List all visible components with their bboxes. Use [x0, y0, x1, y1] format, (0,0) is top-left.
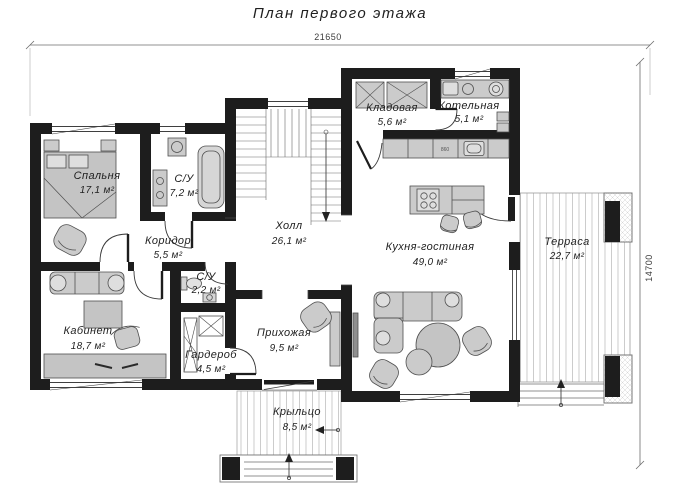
area-kitchen: 49,0 м² [413, 257, 448, 268]
label-porch: Крыльцо [273, 406, 321, 418]
tv [353, 313, 358, 357]
office-sofa [50, 272, 124, 294]
label-kitchen: Кухня-гостиная [386, 241, 475, 253]
pantry-door [357, 141, 382, 169]
office-door [134, 271, 162, 299]
dimension-right [636, 58, 644, 469]
floor-plan-canvas: План первого этажа 21650 14700 [0, 0, 680, 502]
area-wardrobe: 4,5 м² [197, 364, 226, 375]
area-boiler: 5,1 м² [455, 114, 484, 125]
staircase [236, 109, 341, 225]
bath1-window [160, 123, 185, 134]
kitchen-island [410, 186, 484, 214]
label-entry: Прихожая [257, 327, 311, 339]
area-bath1: 7,2 м² [170, 188, 199, 199]
dimension-height-label: 14700 [644, 254, 654, 282]
area-bedroom: 17,1 м² [80, 185, 115, 196]
living-armchair-left [366, 356, 402, 392]
label-bedroom: Спальня [74, 170, 121, 182]
area-terrace: 22,7 м² [549, 251, 585, 262]
plan-title: План первого этажа [253, 5, 427, 22]
office-table [84, 301, 122, 328]
label-bath2: С/У [196, 271, 216, 283]
bedroom-armchair [51, 221, 90, 258]
wardrobe-shaft [184, 318, 197, 372]
area-bath2: 2,2 м² [191, 285, 221, 296]
label-wardrobe: Гардероб [185, 349, 237, 361]
label-bath1: С/У [174, 173, 194, 185]
pouf [406, 349, 432, 375]
area-pantry: 5,6 м² [378, 117, 407, 128]
entry-console [330, 312, 340, 366]
area-corridor: 5,5 м² [154, 250, 183, 261]
terrace-steps-arrow [557, 379, 565, 407]
porch-deck [220, 391, 357, 482]
label-corridor: Коридор [145, 235, 191, 247]
office-window [50, 379, 142, 390]
area-entry: 9,5 м² [270, 343, 299, 354]
living-armchair-right [459, 323, 495, 359]
dimension-width-label: 21650 [314, 32, 342, 42]
bar-stool-1 [439, 214, 460, 234]
terrace-deck [518, 193, 632, 407]
stair-window [268, 98, 308, 109]
stair-direction-arrow [322, 130, 330, 222]
bathtub [198, 146, 224, 208]
washing-machine [168, 138, 186, 156]
vanity [153, 170, 167, 206]
label-boiler: Котельная [438, 100, 499, 112]
area-office: 18,7 м² [71, 341, 106, 352]
area-porch: 8,5 м² [283, 422, 312, 433]
entrance-door [262, 380, 317, 390]
area-hall: 26,1 м² [271, 236, 307, 247]
label-terrace: Терраса [544, 236, 589, 248]
living-window [400, 391, 470, 402]
wardrobe-cabinet [199, 316, 223, 336]
boiler-window [455, 68, 490, 79]
kitchen-east-window [509, 270, 520, 340]
office-desk [44, 354, 166, 378]
label-pantry: Кладовая [366, 102, 418, 114]
bedroom-door [100, 234, 128, 262]
bedroom-window [52, 123, 115, 134]
floor-plan-svg: План первого этажа 21650 14700 [0, 0, 680, 502]
label-office: Кабинет [64, 325, 113, 337]
label-counter-width: 860 [441, 147, 450, 153]
label-hall: Холл [275, 220, 303, 232]
